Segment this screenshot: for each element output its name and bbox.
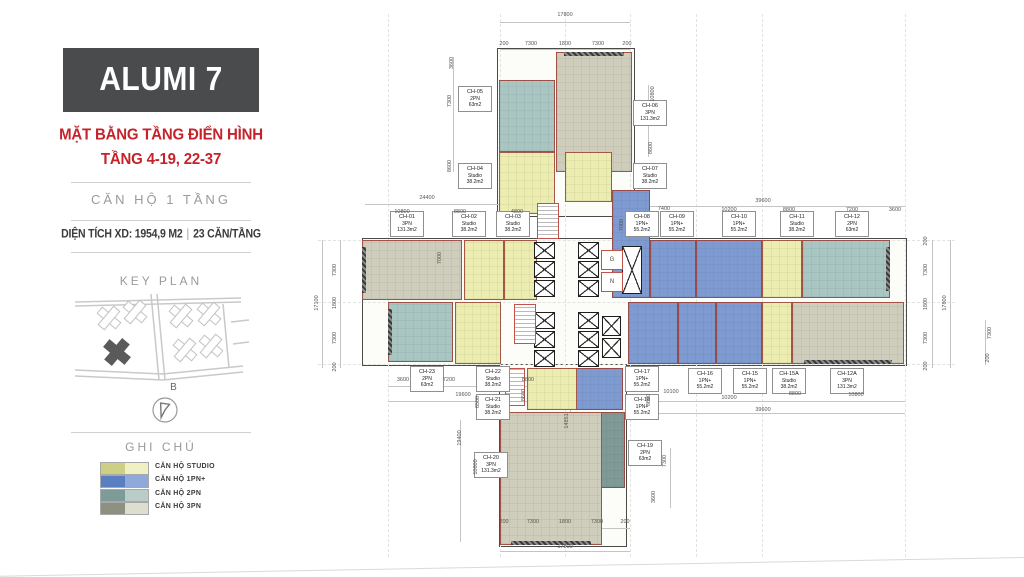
balcony-strip [511,541,591,545]
balcony-strip [564,52,623,56]
dimension-text: 7300 [332,264,338,276]
dimension-text: 200 [620,519,629,525]
unit-ch-12a [792,302,904,364]
dimension-text: 1800 [923,298,929,310]
dimension-text: 7300 [447,95,453,107]
dimension-text: 10200 [721,395,736,401]
unit-uarea: 38.2m2 [774,384,804,391]
unit-uarea: 38.2m2 [478,410,508,417]
dimension-text: 10800 [473,459,479,474]
unit-ch-02 [464,240,504,300]
dimension-text: 7300 [923,264,929,276]
dimension-text: 39600 [755,407,770,413]
balcony-strip [362,247,366,293]
unit-uarea: 38.2m2 [454,227,484,234]
unit-label-ch-12: CH-122PN63m2 [835,211,869,237]
elevator-shaft [578,350,599,367]
unit-label-ch-08: CH-081PN+55.2m2 [625,211,659,237]
unit-label-ch-16: CH-161PN+55.2m2 [688,368,722,394]
dimension-text: 3600 [889,207,901,213]
dimension-text: 10100 [663,389,678,395]
unit-uarea: 131.3m2 [832,384,862,391]
unit-label-ch-06: CH-063PN131.3m2 [633,100,667,126]
dimension-text: 14851 [564,413,570,428]
dimension-text: 7000 [619,219,625,231]
dimension-text: 200 [923,361,929,370]
elevator-shaft [534,331,555,348]
elevator-shaft [622,246,642,294]
dimension-text: 8600 [447,160,453,172]
dimension-text: 7300 [662,455,668,467]
unit-uarea: 55.2m2 [724,227,754,234]
dimension-text: 19400 [457,430,463,445]
dimension-text: 7200 [846,207,858,213]
dimension-text: 7300 [592,41,604,47]
dimension-text: 8600 [646,394,652,406]
unit-uarea: 38.2m2 [460,179,490,186]
dimension-line [645,401,905,402]
unit-label-ch-09: CH-091PN+55.2m2 [660,211,694,237]
elevator-shaft [534,312,555,329]
floor-plan: CH-013PN131.3m2CH-02Studio38.2m2CH-03Stu… [0,0,1024,577]
dimension-text: 39600 [755,198,770,204]
dimension-text: 200 [332,362,338,371]
dimension-text: 7400 [658,206,670,212]
dimension-text: 7300 [525,41,537,47]
unit-ch-01 [362,240,462,300]
dimension-text: 17800 [942,295,948,310]
unit-label-ch-07: CH-07Studio38.2m2 [633,163,667,189]
unit-label-ch-05: CH-052PN63m2 [458,86,492,112]
unit-uarea: 55.2m2 [662,227,692,234]
dimension-text: 8800 [789,391,801,397]
unit-ch-20 [500,412,602,545]
grid-line [905,14,906,557]
stairwell [514,304,536,344]
unit-uarea: 38.2m2 [635,179,665,186]
dimension-line [500,551,630,552]
unit-label-ch-23: CH-232PN63m2 [410,366,444,392]
dimension-text: 7300 [527,519,539,525]
unit-uarea: 63m2 [837,227,867,234]
dimension-text: 200 [622,41,631,47]
dimension-text: 8800 [522,377,534,383]
unit-label-ch-11: CH-11Studio38.2m2 [780,211,814,237]
unit-uarea: 131.3m2 [476,468,506,475]
page: ALUMI 7 MẶT BẰNG TẦNG ĐIỂN HÌNH TẦNG 4-1… [0,0,1024,577]
dimension-line [932,240,933,368]
dimension-text: 17800 [557,12,572,18]
unit-uarea: 55.2m2 [735,384,765,391]
unit-uarea: 55.2m2 [690,384,720,391]
unit-ch-03 [504,240,537,300]
unit-ch-12 [802,240,890,298]
dimension-line [322,240,323,368]
elevator-shaft [578,280,599,297]
elevator-shaft [602,316,621,336]
elevator-shaft [534,261,555,278]
balcony-strip [804,360,892,364]
unit-ch-09 [650,240,696,298]
elevator-shaft [534,350,555,367]
dimension-text: 200 [985,353,991,362]
dimension-text: 10800 [650,86,656,101]
dimension-line [340,240,341,368]
unit-ch-15 [716,302,762,364]
dimension-text: 3600 [449,57,455,69]
dimension-text: 1800 [332,297,338,309]
unit-label-ch-21: CH-21Studio38.2m2 [476,394,510,420]
dimension-text: 17100 [314,295,320,310]
unit-uarea: 131.3m2 [392,227,422,234]
unit-label-ch-04: CH-04Studio38.2m2 [458,163,492,189]
dimension-text: 17800 [557,544,572,550]
unit-label-ch-15: CH-151PN+55.2m2 [733,368,767,394]
elevator-shaft [578,242,599,259]
dimension-text: 7300 [987,327,993,339]
unit-ch-05 [499,80,555,152]
dimension-text: 7200 [443,377,455,383]
unit-ch-15a [762,302,792,364]
dimension-text: 7300 [591,519,603,525]
dimension-text: 10200 [721,207,736,213]
unit-label-ch-10: CH-101PN+55.2m2 [722,211,756,237]
unit-ch-23 [388,302,453,362]
dimension-line [500,22,630,23]
grid-line [318,364,955,365]
unit-ch-16 [678,302,716,364]
unit-uarea: 38.2m2 [478,382,508,389]
unit-label-ch-12a: CH-12A3PN131.3m2 [830,368,864,394]
dimension-text: 200 [499,519,508,525]
dimension-text: 1800 [559,41,571,47]
elevator-shaft [578,312,599,329]
elevator-shaft [534,280,555,297]
dimension-text: 3600 [651,491,657,503]
unit-ch-18 [628,302,678,364]
unit-uarea: 63m2 [412,382,442,389]
dimension-text: 200 [499,41,508,47]
dimension-text: 8800 [783,207,795,213]
unit-label-ch-18: CH-181PN+55.2m2 [625,394,659,420]
dimension-text: 8800 [454,209,466,215]
dimension-line [500,49,630,50]
stairwell [537,203,559,239]
elevator-shaft [578,331,599,348]
dimension-text: 200 [923,236,929,245]
dimension-text: 6500 [475,396,481,408]
unit-label-ch-17: CH-171PN+55.2m2 [625,366,659,392]
elevator-shaft [602,338,621,358]
unit-label-ch-15a: CH-15AStudio38.2m2 [772,368,806,394]
unit-label-ch-22: CH-22Studio38.2m2 [476,366,510,392]
dimension-line [645,206,905,207]
unit-ch-21 [527,368,577,410]
unit-uarea: 55.2m2 [627,227,657,234]
balcony-strip [886,247,890,292]
core-room-g: G [601,250,623,270]
unit-ch-07 [565,152,612,202]
balcony-strip [388,309,392,355]
dimension-text: 10800 [394,209,409,215]
dimension-line [670,448,671,508]
unit-uarea: 55.2m2 [627,382,657,389]
dimension-text: 7000 [437,252,443,264]
dimension-text: 4800 [511,209,523,215]
dimension-text: 3600 [397,377,409,383]
unit-label-ch-20: CH-203PN131.3m2 [474,452,508,478]
unit-uarea: 38.2m2 [498,227,528,234]
unit-ch-11 [762,240,802,298]
unit-uarea: 63m2 [630,456,660,463]
dimension-text: 8600 [648,142,654,154]
dimension-line [453,57,454,172]
dimension-text: 10800 [848,392,863,398]
unit-label-ch-19: CH-192PN63m2 [628,440,662,466]
dimension-text: 7300 [923,332,929,344]
dimension-line [645,413,905,414]
core-room-n: N [601,272,623,292]
dimension-text: 1800 [559,519,571,525]
unit-uarea: 55.2m2 [627,410,657,417]
dimension-text: 19600 [455,392,470,398]
unit-ch-10 [696,240,762,298]
unit-uarea: 38.2m2 [782,227,812,234]
unit-uarea: 131.3m2 [635,116,665,123]
dimension-line [950,240,951,368]
dimension-text: 24400 [419,195,434,201]
elevator-shaft [578,261,599,278]
unit-ch-17 [573,368,623,410]
dimension-text: 7300 [332,332,338,344]
unit-ch-22 [455,302,501,364]
unit-uarea: 63m2 [460,102,490,109]
dimension-text: 8600 [521,389,527,401]
elevator-shaft [534,242,555,259]
